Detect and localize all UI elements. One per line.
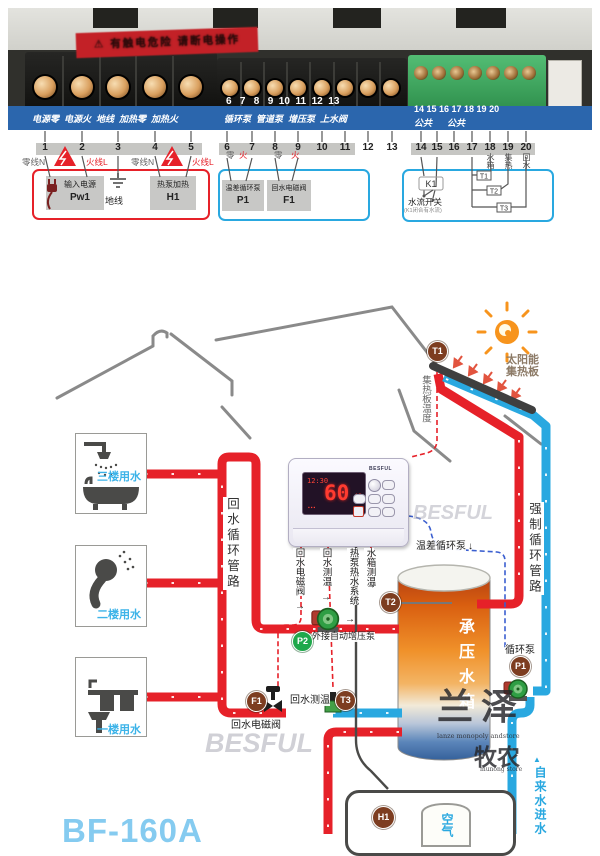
controller: 12:30 60 ℃ ▪▪▪ BESFUL — [288, 458, 409, 547]
out4-arrow: → — [366, 580, 376, 591]
heat-pump-cylinder: 空气 — [421, 803, 471, 847]
display-temp: 60 — [324, 481, 349, 505]
t3-badge: T3 — [335, 690, 356, 711]
legend-wires — [45, 131, 526, 207]
out-return-temp-label: 回水测温 — [320, 548, 330, 586]
p2-badge: P2 — [292, 631, 313, 652]
t2-symbol-label: T2 — [490, 189, 498, 196]
diff-pump-label: 温差循环泵 — [416, 541, 466, 552]
collector-temp-label: 集热板温度 — [418, 375, 432, 423]
munong-watermark-sub: munong store — [480, 766, 522, 773]
plug-icon — [47, 179, 57, 209]
floor2-label: 二楼用水 — [97, 606, 141, 622]
controller-button — [382, 480, 395, 490]
k1-label: K1 — [425, 179, 436, 189]
forced-loop-label: 强制循环管路 — [525, 502, 544, 595]
controller-button — [382, 494, 395, 504]
out2-arrow: → — [321, 592, 331, 603]
return-loop-label: 回水循环管路 — [223, 497, 242, 590]
t1-symbol-label: T1 — [480, 174, 488, 181]
heat-pump-box: 空气 — [345, 790, 516, 856]
floor3-label: 三楼用水 — [97, 468, 141, 484]
f1-badge: F1 — [246, 691, 267, 712]
p1-badge: P1 — [510, 656, 531, 677]
tap-water-label: 自来水进水 — [532, 766, 549, 836]
solar-panel-label: 太阳能 集热板 — [506, 354, 539, 378]
out-heatpump-label: 热泵热水系统 — [347, 548, 357, 605]
brand-logo: BESFUL — [369, 466, 392, 472]
tap-water-arrow: ▲ — [533, 755, 541, 764]
controller-button-red — [353, 506, 364, 517]
out1-arrow: → — [295, 601, 305, 612]
sun-icon — [478, 303, 536, 361]
ground-symbol-icon — [110, 173, 126, 187]
model-number: BF-160A — [62, 812, 203, 850]
diff-pump-arrow: ↓ — [468, 541, 473, 552]
controller-knob — [368, 479, 381, 492]
floor2-box: 二楼用水 — [75, 545, 147, 627]
h1-badge: H1 — [372, 806, 395, 829]
lanze-watermark: 兰泽 — [437, 678, 525, 730]
controller-button — [353, 494, 366, 504]
t3-symbol-label: T3 — [500, 206, 508, 213]
display-indicators: ▪▪▪ — [308, 505, 316, 511]
controller-button — [382, 507, 395, 517]
t3-sensor-label: 回水测温 — [290, 695, 330, 706]
out3-arrow: → — [345, 614, 355, 625]
page: { "terminal_photo": { "warning_sticker":… — [0, 0, 600, 834]
floor3-box: 三楼用水 — [75, 433, 147, 514]
t2-badge: T2 — [380, 592, 401, 613]
floor1-label: 一楼用水 — [97, 721, 141, 737]
controller-bottom-panel — [293, 528, 404, 543]
besful-watermark: BESFUL — [413, 502, 493, 525]
p1-pump-label: 循环泵 — [505, 645, 535, 656]
out-valve-label: 回水电磁阀 — [293, 548, 303, 596]
pressure-tank — [398, 565, 490, 760]
p2-pump-label: 外接自动增压泵 — [312, 632, 375, 642]
controller-button — [368, 507, 381, 517]
controller-button — [368, 494, 381, 504]
floor1-box: 一楼用水 — [75, 657, 147, 737]
besful-watermark-2: BESFUL — [205, 728, 313, 759]
t1-badge: T1 — [427, 341, 448, 362]
heat-pump-cyl-label: 空气 — [439, 813, 456, 837]
